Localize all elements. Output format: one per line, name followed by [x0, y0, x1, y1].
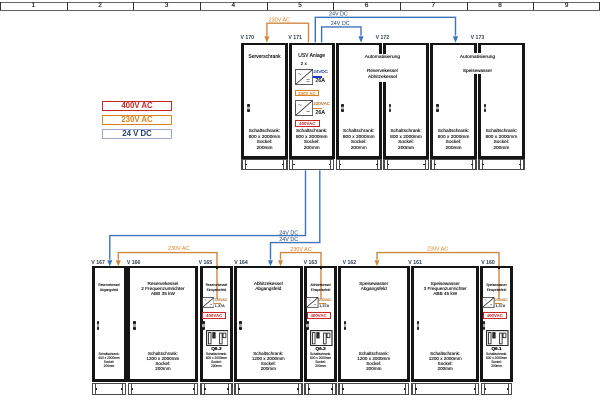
svg-text:24V DC: 24V DC [279, 231, 298, 237]
svg-text:~: ~ [298, 70, 302, 77]
svg-text:~: ~ [306, 109, 310, 116]
svg-text:~: ~ [298, 102, 302, 109]
svg-text:230V AC: 230V AC [290, 247, 311, 253]
svg-text:24V DC: 24V DC [279, 237, 298, 243]
svg-text:=: = [306, 77, 310, 84]
svg-text:24V DC: 24V DC [331, 21, 350, 27]
svg-text:230V AC: 230V AC [269, 18, 290, 24]
svg-text:24V DC: 24V DC [329, 11, 348, 17]
svg-text:230V AC: 230V AC [168, 246, 189, 252]
svg-text:230V AC: 230V AC [427, 247, 448, 253]
